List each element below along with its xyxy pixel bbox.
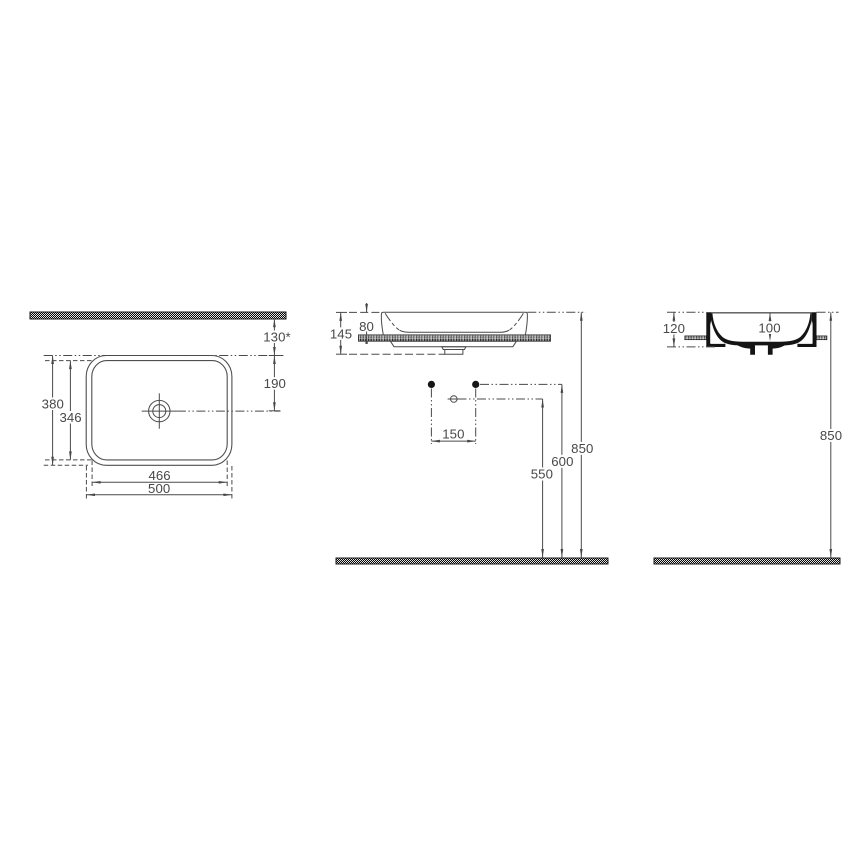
svg-text:150: 150 xyxy=(442,427,464,442)
svg-text:850: 850 xyxy=(820,428,842,443)
svg-text:346: 346 xyxy=(59,410,81,425)
svg-text:600: 600 xyxy=(551,454,573,469)
svg-text:130*: 130* xyxy=(263,329,291,344)
svg-text:190: 190 xyxy=(264,376,286,391)
svg-text:100: 100 xyxy=(758,321,780,336)
svg-text:80: 80 xyxy=(359,319,374,334)
svg-text:500: 500 xyxy=(148,481,170,496)
svg-text:850: 850 xyxy=(571,441,593,456)
svg-text:550: 550 xyxy=(531,467,553,482)
svg-text:120: 120 xyxy=(663,321,685,336)
svg-text:145: 145 xyxy=(330,326,352,341)
